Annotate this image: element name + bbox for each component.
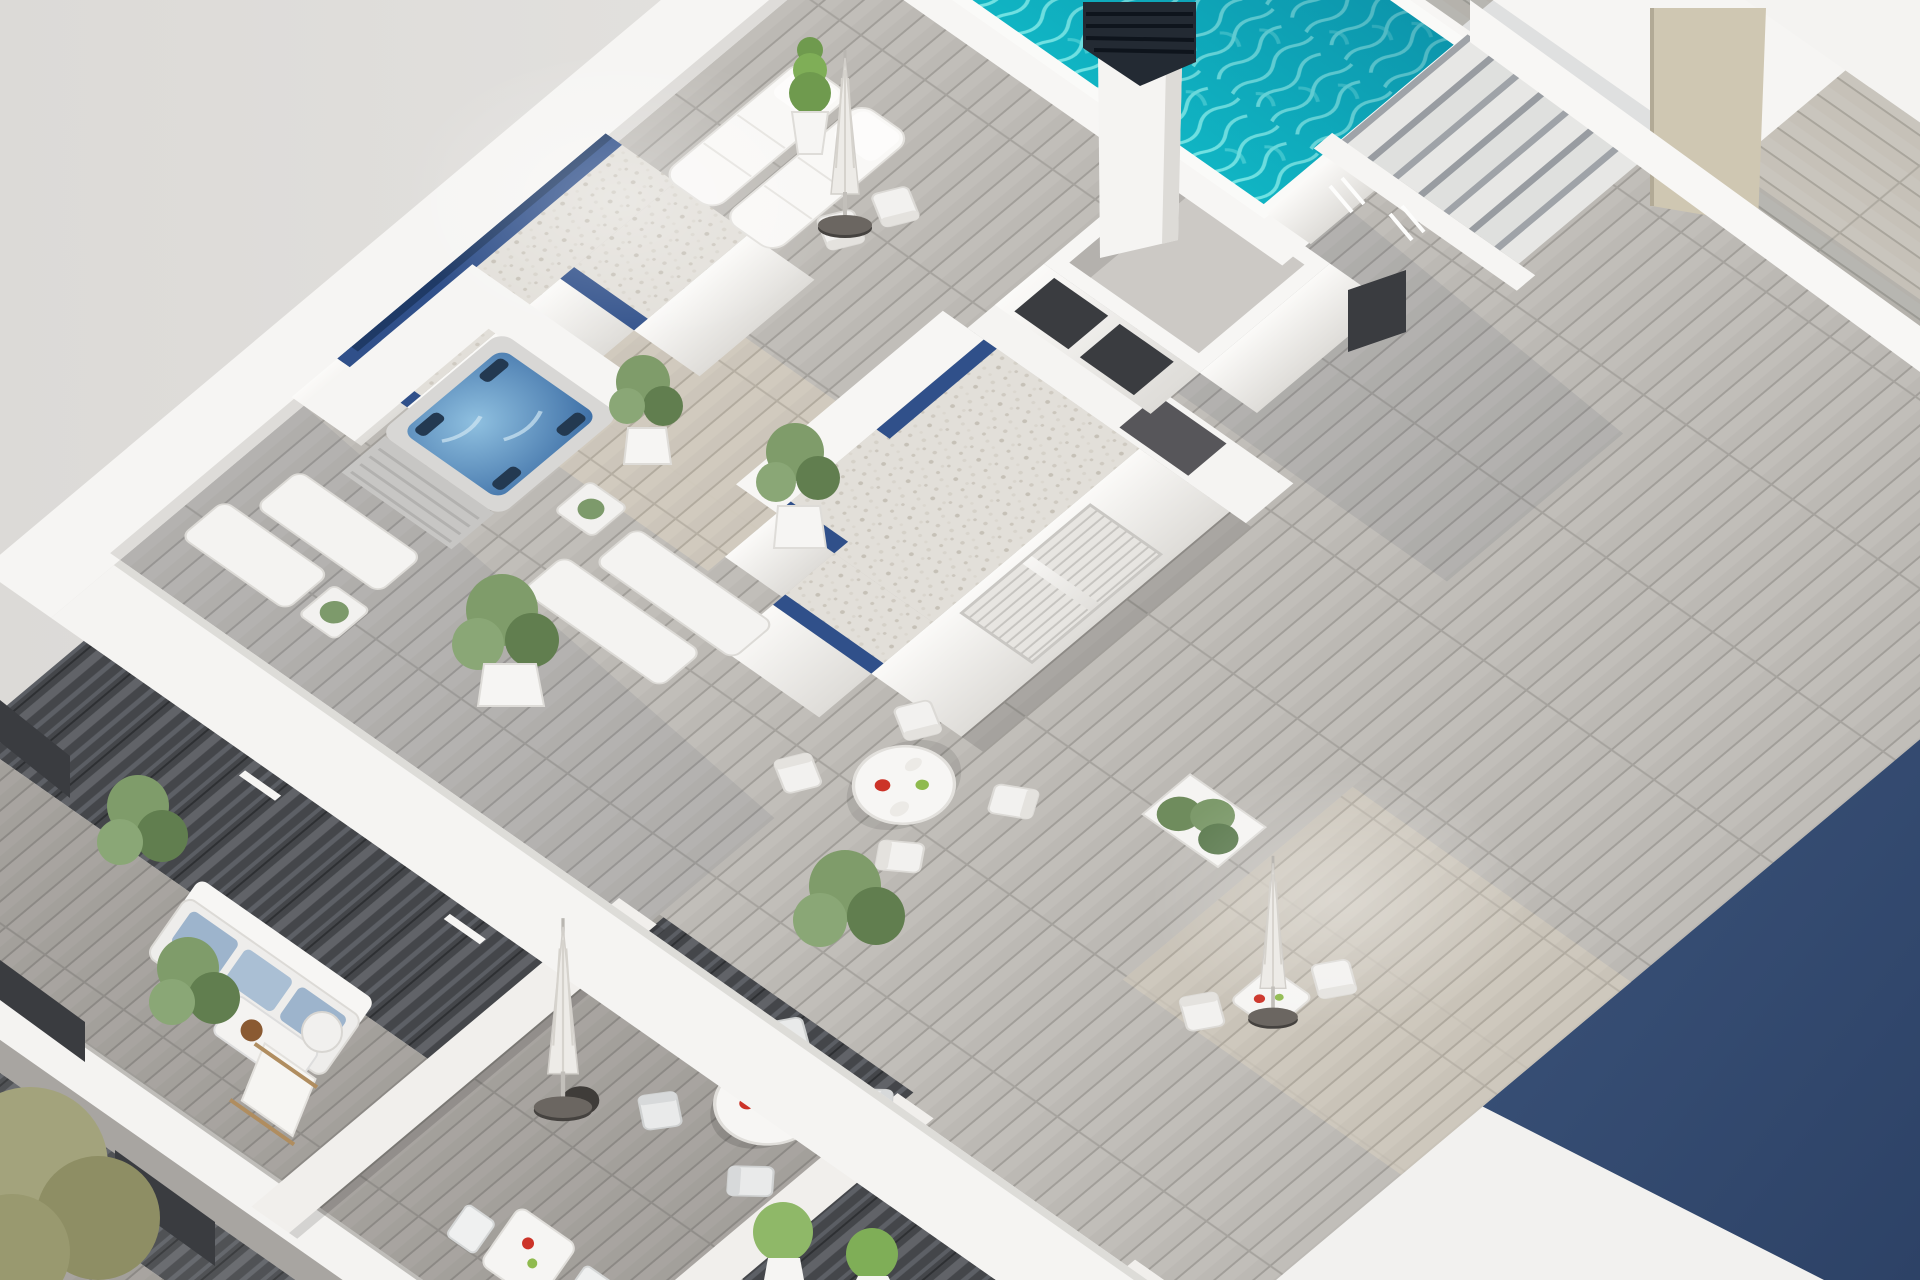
render-canvas	[0, 0, 1920, 1280]
side-table-round	[302, 1012, 342, 1052]
rooftop-render: Aerial isometric 3D rendering of a white…	[0, 0, 1920, 1280]
sun-glare	[1150, 770, 1530, 1030]
sun-glare	[400, 50, 840, 350]
